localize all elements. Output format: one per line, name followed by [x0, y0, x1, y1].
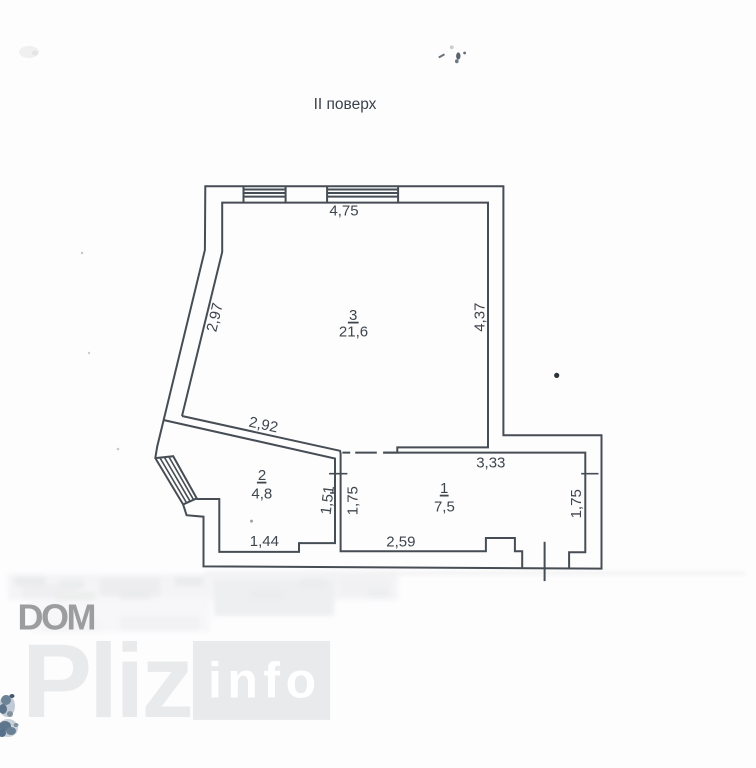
- svg-text:4,37: 4,37: [472, 303, 489, 332]
- svg-text:21,6: 21,6: [339, 324, 368, 341]
- svg-text:1,51: 1,51: [318, 485, 338, 516]
- svg-text:7,5: 7,5: [434, 498, 455, 515]
- svg-text:3: 3: [349, 307, 357, 324]
- svg-text:2,59: 2,59: [386, 534, 415, 551]
- svg-text:II поверх: II поверх: [314, 96, 377, 113]
- svg-text:1,75: 1,75: [568, 489, 585, 518]
- svg-text:1,75: 1,75: [345, 486, 362, 515]
- svg-text:4,75: 4,75: [329, 203, 358, 220]
- svg-text:Pliz: Pliz: [22, 623, 191, 740]
- svg-text:info: info: [208, 652, 322, 708]
- svg-text:DOM: DOM: [18, 597, 95, 638]
- svg-text:1: 1: [440, 480, 448, 497]
- svg-text:1,44: 1,44: [250, 533, 279, 550]
- svg-text:2: 2: [258, 467, 266, 484]
- svg-text:3,33: 3,33: [476, 455, 505, 472]
- svg-text:4,8: 4,8: [251, 486, 272, 503]
